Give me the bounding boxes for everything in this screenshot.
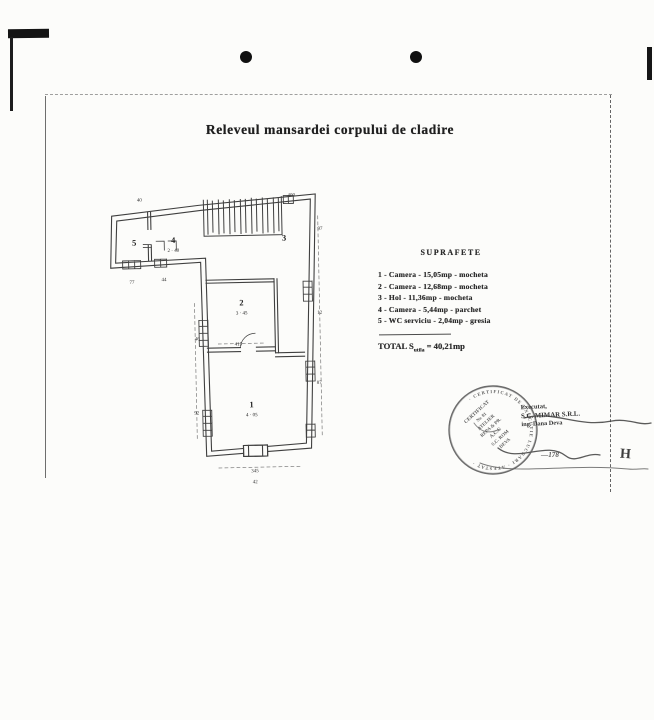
- stamp-inner-text: CERTIFICAT Nr. 81 ATELIER REPA & PR. A.C…: [463, 399, 519, 456]
- floor-plan: 1 4 · 05 2 3 · 45 3 4 2 · 40 5 415 345 4…: [98, 188, 348, 498]
- legend-total: TOTAL Sutila = 40,21mp: [378, 341, 548, 354]
- plan-outline-outer: [109, 194, 320, 458]
- scan-artifact-corner-bar: [8, 29, 49, 38]
- dim-label: 97: [317, 227, 323, 232]
- scanned-sheet: Releveul mansardei corpului de cladire: [0, 0, 654, 720]
- legend-header: SUPRAFETE: [386, 248, 516, 257]
- scan-artifact-right-edge: [647, 47, 652, 80]
- stairs-hatch: [203, 197, 282, 237]
- scan-artifact-edge-line: [10, 37, 13, 111]
- room-label-4: 4: [171, 235, 176, 245]
- dim-label: 92: [194, 411, 200, 416]
- room-dim-2: 3 · 45: [236, 311, 248, 316]
- plan-corridor-end: [276, 352, 305, 357]
- room-label-5: 5: [132, 238, 136, 248]
- floor-plan-drawing: [109, 194, 323, 470]
- dim-label: 345: [251, 469, 259, 474]
- room-dim-1: 4 · 05: [246, 413, 258, 418]
- sheet-border-top: [45, 94, 612, 95]
- room-dim-4: 2 · 40: [167, 249, 179, 254]
- legend-item: 4 - Camera - 5,44mp - parchet: [378, 304, 548, 316]
- plan-corridor-wall: [274, 279, 279, 353]
- window-symbols-right: [303, 281, 316, 437]
- legend-item: 3 - Hol - 11,36mp - mocheta: [378, 292, 548, 304]
- area-legend: SUPRAFETE 1 - Camera - 15,05mp - mocheta…: [378, 248, 548, 354]
- room-label-1: 1: [249, 399, 253, 409]
- room-label-3: 3: [282, 233, 286, 243]
- legend-item: 2 - Camera - 12,68mp - mocheta: [378, 281, 548, 293]
- executant-block: Executat, S.C. MIMAR S.R.L. ing. Dana De…: [520, 400, 621, 430]
- stamp-ring: [449, 386, 537, 474]
- entry-door: [243, 445, 267, 457]
- dim-label: 77: [129, 281, 135, 286]
- total-prefix: TOTAL S: [378, 341, 414, 351]
- dim-label: 46: [195, 337, 201, 342]
- punch-hole-left-icon: [240, 51, 252, 63]
- dim-label: 12: [317, 311, 323, 316]
- total-value: = 40,21mp: [424, 341, 464, 351]
- dim-label: 415: [235, 342, 243, 347]
- legend-item: 5 - WC serviciu - 2,04mp - gresia: [378, 315, 548, 327]
- legend-item: 1 - Camera - 15,05mp - mocheta: [378, 269, 548, 281]
- dim-label: 42: [253, 480, 259, 485]
- total-subscript: utila: [414, 348, 425, 354]
- stamp-number: —178: [540, 451, 559, 459]
- plan-partition-5-4: [143, 212, 152, 260]
- margin-mark: H: [619, 447, 631, 464]
- drawing-title: Releveul mansardei corpului de cladire: [150, 122, 510, 138]
- punch-hole-right-icon: [410, 51, 422, 63]
- legend-divider: [379, 334, 451, 338]
- dim-label: 40: [137, 199, 143, 204]
- sheet-border-left: [45, 96, 46, 478]
- door-swing: [240, 333, 255, 347]
- plan-partition-hall-room2: [206, 279, 274, 283]
- stamp-ring-inner: [450, 387, 536, 473]
- plan-partition-room2-room1: [207, 347, 275, 352]
- dim-label: 44: [161, 278, 167, 283]
- dim-label: 400: [287, 193, 295, 198]
- dim-label: 87: [317, 381, 323, 386]
- room-label-2: 2: [239, 297, 243, 307]
